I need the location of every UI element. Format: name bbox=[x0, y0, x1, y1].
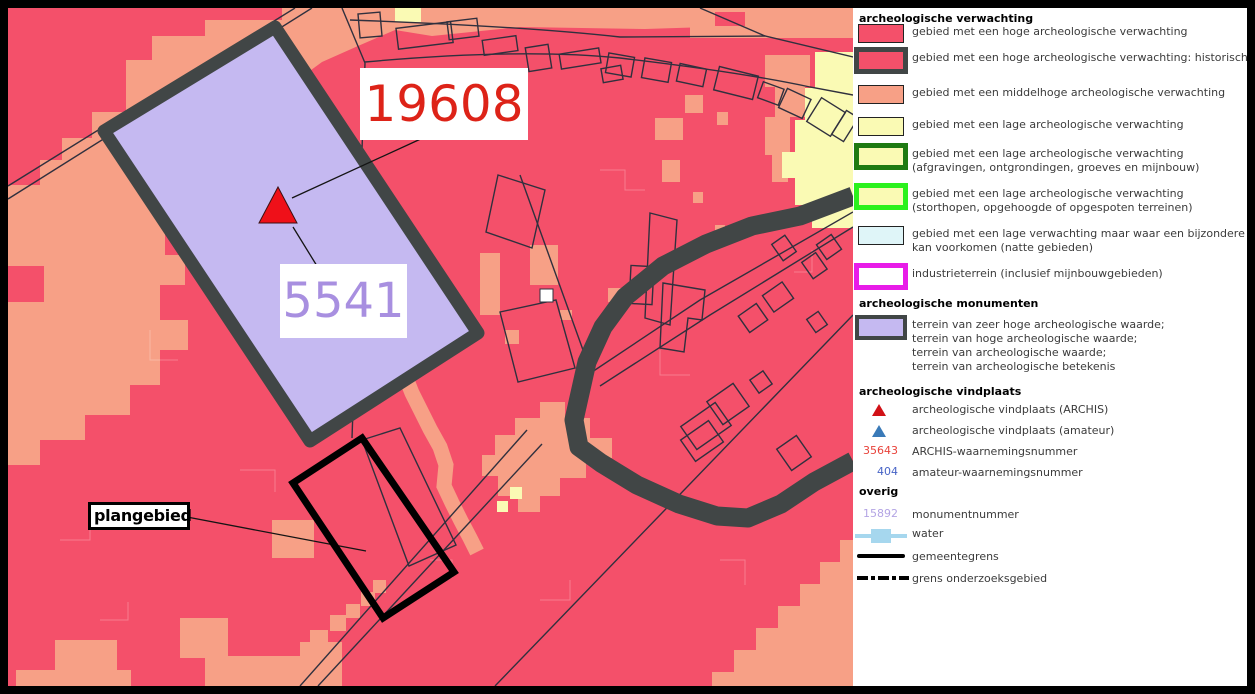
yellow-fill-darkgreen-border-swatch bbox=[854, 143, 908, 170]
legend-section-title: archeologische vindplaats bbox=[859, 385, 1021, 398]
map-canvas[interactable]: 19608 5541 plangebied bbox=[8, 8, 853, 686]
legend-item-label: monumentnummer bbox=[912, 508, 1019, 522]
red-triangle-icon bbox=[872, 404, 886, 416]
legend-item-label: gebied met een lage archeologische verwa… bbox=[912, 187, 1193, 215]
legend-item-line1: gebied met een lage verwachting maar waa… bbox=[912, 227, 1255, 241]
legend-item-label: amateur-waarnemingsnummer bbox=[912, 466, 1083, 480]
yellow-fill-green-border-swatch bbox=[854, 183, 908, 210]
legend-panel: archeologische verwachting gebied met ee… bbox=[853, 8, 1247, 686]
legend-item-line3: terrein van archeologische waarde; bbox=[912, 346, 1165, 360]
legend-item-label: gebied met een hoge archeologische verwa… bbox=[912, 51, 1255, 65]
legend-item-label: gebied met een lage archeologische verwa… bbox=[912, 147, 1199, 175]
salmon-fill-swatch bbox=[858, 85, 904, 104]
cyan-fill-swatch bbox=[858, 226, 904, 245]
white-parcel-patch bbox=[540, 289, 553, 302]
amateur-number-sample: 404 bbox=[858, 465, 898, 478]
legend-item-label: industrieterrein (inclusief mijnbouwgebi… bbox=[912, 267, 1163, 281]
red-fill-darkgray-border-swatch bbox=[854, 47, 908, 74]
legend-item-label: archeologische vindplaats (ARCHIS) bbox=[912, 403, 1108, 417]
archaeological-map-window: 19608 5541 plangebied archeologische ver… bbox=[0, 0, 1255, 694]
legend-item-line1: terrein van zeer hoge archeologische waa… bbox=[912, 318, 1165, 332]
dash-dot-line-icon bbox=[857, 576, 909, 580]
white-fill-magenta-border-swatch bbox=[854, 263, 908, 290]
blue-triangle-icon bbox=[872, 425, 886, 437]
plan-area-label: plangebied bbox=[88, 502, 190, 530]
legend-item-line1: gebied met een lage archeologische verwa… bbox=[912, 187, 1193, 201]
legend-item-line2: (storthopen, opgehoogde of opgespoten te… bbox=[912, 201, 1193, 215]
legend-item-label: water bbox=[912, 527, 943, 541]
archis-number-sample: 35643 bbox=[858, 444, 898, 457]
yellow-fill-swatch bbox=[858, 117, 904, 136]
legend-item-label: gebied met een lage archeologische verwa… bbox=[912, 118, 1184, 132]
legend-item-line2: terrein van hoge archeologische waarde; bbox=[912, 332, 1165, 346]
water-line-icon bbox=[855, 528, 907, 544]
legend-item-label: grens onderzoeksgebied bbox=[912, 572, 1047, 586]
solid-line-icon bbox=[857, 554, 905, 558]
legend-item-label: gemeentegrens bbox=[912, 550, 999, 564]
red-inset-patch-top bbox=[715, 12, 745, 26]
legend-item-label: gebied met een middelhoge archeologische… bbox=[912, 86, 1225, 100]
archis-number-label: 19608 bbox=[360, 68, 528, 140]
legend-section-title: overig bbox=[859, 485, 898, 498]
monument-number-label: 5541 bbox=[280, 264, 407, 338]
purple-fill-darkgray-border-swatch bbox=[855, 315, 907, 340]
legend-item-label: terrein van zeer hoge archeologische waa… bbox=[912, 318, 1165, 374]
red-fill-swatch bbox=[858, 24, 904, 43]
legend-section-title: archeologische monumenten bbox=[859, 297, 1038, 310]
red-inset-patch bbox=[8, 266, 44, 302]
legend-item-line2: (afgravingen, ontgrondingen, groeves en … bbox=[912, 161, 1199, 175]
legend-item-label: gebied met een hoge archeologische verwa… bbox=[912, 25, 1188, 39]
legend-item-line4: terrein van archeologische betekenis bbox=[912, 360, 1165, 374]
legend-item-label: ARCHIS-waarnemingsnummer bbox=[912, 445, 1077, 459]
legend-item-label: archeologische vindplaats (amateur) bbox=[912, 424, 1114, 438]
legend-item-label: gebied met een lage verwachting maar waa… bbox=[912, 227, 1255, 255]
monument-number-sample: 15892 bbox=[858, 507, 898, 520]
legend-item-line2: kan voorkomen (natte gebieden) bbox=[912, 241, 1255, 255]
legend-item-line1: gebied met een lage archeologische verwa… bbox=[912, 147, 1199, 161]
